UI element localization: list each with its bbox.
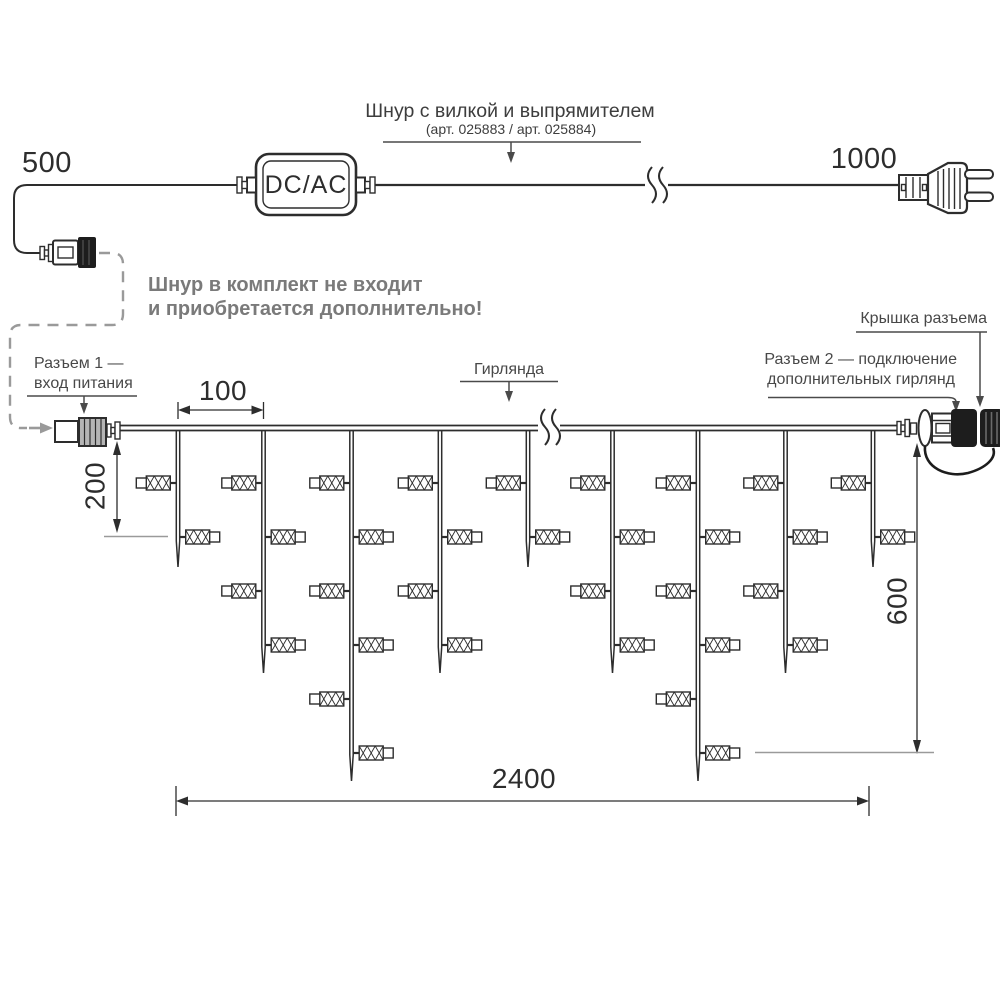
bulb-icon — [744, 584, 784, 598]
garland-main-wire — [120, 409, 897, 446]
bulb-icon — [700, 638, 740, 652]
cord-callout: Шнур с вилкой и выпрямителем (арт. 02588… — [365, 100, 654, 163]
wire-break-icon — [538, 409, 560, 446]
garland-drop — [571, 431, 654, 673]
diagram-canvas: DC/AC 500 1000 — [0, 0, 1000, 1000]
garland-drop — [656, 431, 739, 781]
bulb-icon — [656, 476, 696, 490]
bulb-icon — [136, 476, 176, 490]
bulb-icon — [571, 584, 611, 598]
bulb-icon — [614, 530, 654, 544]
power-cord-diagram: DC/AC 500 1000 — [14, 100, 993, 320]
bulb-icon — [180, 530, 220, 544]
bulb-icon — [310, 476, 350, 490]
bulb-icon — [310, 692, 350, 706]
garland-drop — [831, 431, 914, 567]
cap-tether — [925, 446, 994, 474]
dashed-guide-path — [10, 253, 123, 434]
dim-total-value: 2400 — [492, 763, 556, 794]
note-line2: и приобретается дополнительно! — [148, 298, 482, 320]
cord-end-connector-icon — [53, 237, 96, 268]
bulb-icon — [787, 638, 827, 652]
guide-arrow-icon — [40, 423, 53, 434]
bulb-icon — [875, 530, 915, 544]
dim-spacing-value: 100 — [199, 375, 247, 406]
dc-ac-converter: DC/AC — [237, 154, 375, 215]
bulb-icon — [614, 638, 654, 652]
bulb-icon — [787, 530, 827, 544]
bulb-icon — [398, 584, 438, 598]
cord-left-wire — [14, 185, 256, 253]
connector1-label-line2: вход питания — [34, 375, 133, 392]
cord-title: Шнур с вилкой и выпрямителем — [365, 100, 654, 122]
connector-cap-label: Крышка разъема — [860, 310, 987, 327]
garland-label: Гирлянда — [474, 361, 544, 378]
bulb-icon — [530, 530, 570, 544]
bulb-icon — [442, 530, 482, 544]
bulb-icon — [222, 584, 262, 598]
bulb-icon — [486, 476, 526, 490]
garland-drops — [136, 431, 914, 781]
connector1-callout: Разъем 1 — вход питания — [27, 355, 137, 414]
bulb-icon — [265, 530, 305, 544]
connector2-label-line1: Разъем 2 — подключение — [764, 351, 957, 368]
bulb-icon — [353, 746, 393, 760]
connector2-callout: Разъем 2 — подключение дополнительных ги… — [764, 351, 960, 412]
converter-label: DC/AC — [265, 171, 348, 199]
bulb-icon — [353, 638, 393, 652]
dim-cord-right: 1000 — [831, 143, 898, 175]
bulb-icon — [656, 692, 696, 706]
connector1-label-line1: Разъем 1 — — [34, 355, 124, 372]
dim-100: 100 — [178, 375, 264, 419]
garland-drop — [310, 431, 393, 781]
dim-drop-long-value: 600 — [882, 577, 913, 625]
bulb-icon — [310, 584, 350, 598]
power-plug-icon — [899, 163, 993, 213]
note-line1: Шнур в комплект не входит — [148, 274, 423, 296]
bulb-icon — [744, 476, 784, 490]
bulb-icon — [398, 476, 438, 490]
connector-cap-icon — [980, 409, 1000, 447]
bulb-icon — [831, 476, 871, 490]
bulb-icon — [656, 584, 696, 598]
cable-break-icon — [645, 166, 667, 204]
bulb-icon — [571, 476, 611, 490]
bulb-icon — [700, 746, 740, 760]
garland-wiring-diagram: DC/AC 500 1000 — [0, 0, 1000, 1000]
bulb-icon — [700, 530, 740, 544]
cord-subtitle: (арт. 025883 / арт. 025884) — [426, 121, 596, 137]
garland-output-connector-icon — [897, 409, 1000, 474]
cable-clamp-icon — [40, 245, 54, 262]
bulb-icon — [353, 530, 393, 544]
bulb-icon — [265, 638, 305, 652]
garland-drop — [744, 431, 827, 673]
garland-input-connector-icon — [55, 418, 120, 446]
dim-cord-left: 500 — [22, 147, 72, 179]
dim-drop-short-value: 200 — [80, 462, 111, 510]
bulb-icon — [222, 476, 262, 490]
dim-2400: 2400 — [176, 763, 869, 816]
garland-drop — [136, 431, 219, 567]
connector2-label-line2: дополнительных гирлянд — [767, 371, 955, 388]
bulb-icon — [442, 638, 482, 652]
garland-drop — [486, 431, 569, 567]
garland-drop — [222, 431, 305, 673]
garland-callout: Гирлянда — [460, 361, 558, 402]
garland-drop — [398, 431, 481, 673]
